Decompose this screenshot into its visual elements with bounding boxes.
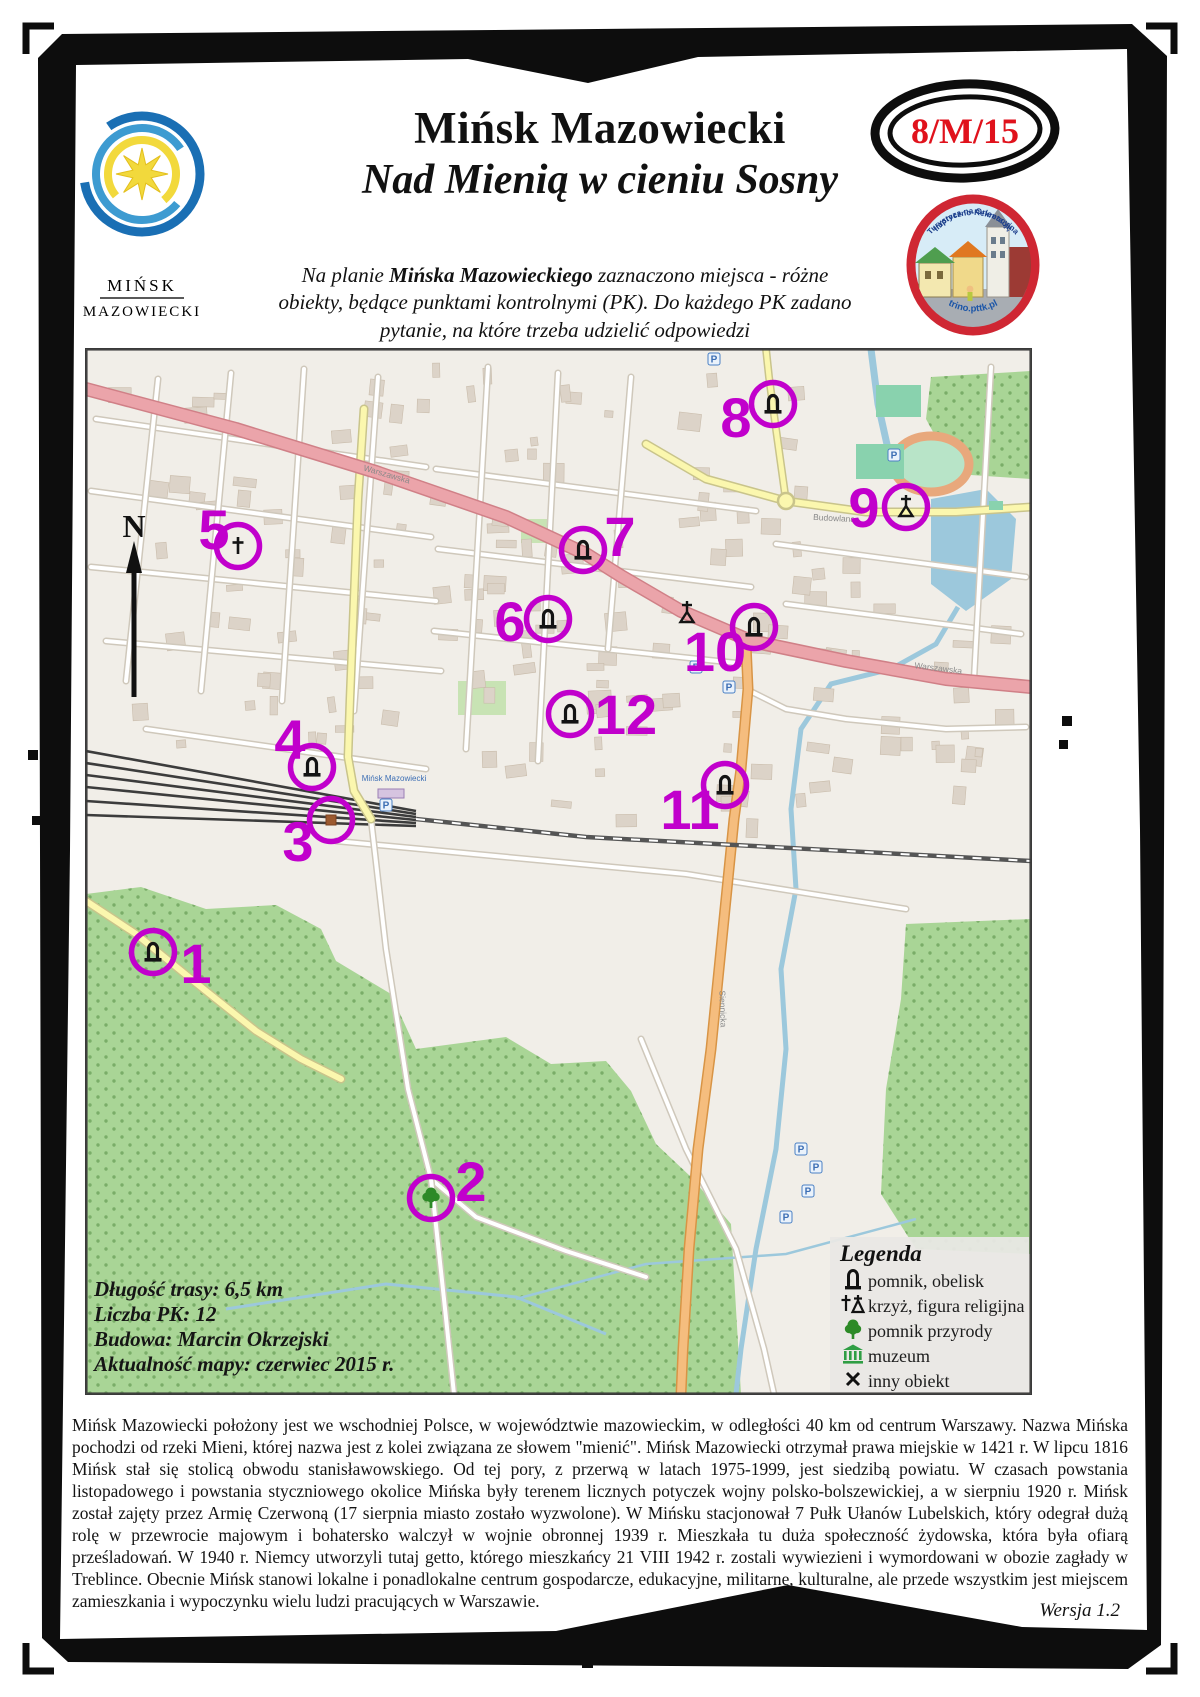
city-logo-line1: MIŃSK — [107, 276, 177, 295]
code-badge: 8/M/15 — [873, 81, 1056, 181]
city-logo: MIŃSK MAZOWIECKI — [61, 93, 223, 320]
trino-logo: Turystyczno-Rekreacyjna Impreza na Orien… — [903, 199, 1043, 339]
header-graphics: MIŃSK MAZOWIECKI 8/M/15 — [0, 0, 1200, 1697]
logo-star-icon — [116, 148, 168, 200]
code-badge-text: 8/M/15 — [911, 111, 1019, 151]
page: { "page": { "code_badge": "8/M/15", "ver… — [0, 0, 1200, 1697]
city-logo-line2: MAZOWIECKI — [83, 304, 201, 320]
